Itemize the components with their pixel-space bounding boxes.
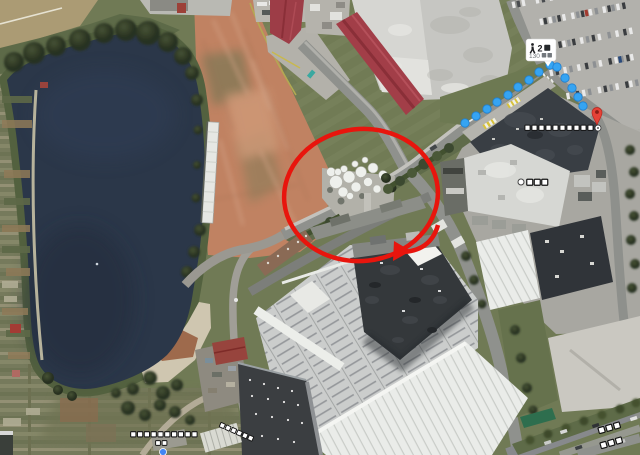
svg-text:130: 130 — [529, 53, 540, 60]
svg-text:2: 2 — [538, 44, 543, 54]
